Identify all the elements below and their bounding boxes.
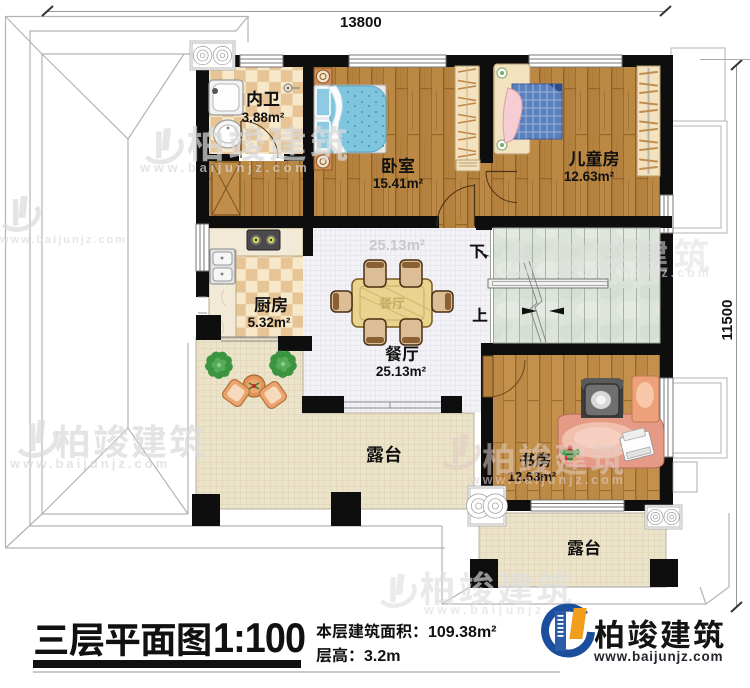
- svg-text:www.baijunjz.com: www.baijunjz.com: [555, 266, 712, 280]
- svg-text:13800: 13800: [340, 14, 382, 31]
- svg-text:www.baijunjz.com: www.baijunjz.com: [139, 160, 310, 175]
- svg-text:12.63m²: 12.63m²: [564, 169, 615, 184]
- svg-text:109.38m²: 109.38m²: [428, 624, 497, 641]
- svg-text:25.13m²: 25.13m²: [369, 237, 425, 254]
- svg-text:www.baijunjz.com: www.baijunjz.com: [0, 234, 127, 246]
- svg-text:11500: 11500: [719, 300, 736, 341]
- svg-text:www.baijunjz.com: www.baijunjz.com: [469, 473, 626, 487]
- svg-text:3.88m²: 3.88m²: [242, 110, 285, 125]
- svg-text:5.32m²: 5.32m²: [248, 315, 291, 330]
- svg-text:1:100: 1:100: [213, 615, 305, 661]
- svg-text:15.41m²: 15.41m²: [373, 176, 424, 191]
- svg-text:www.baijunjz.com: www.baijunjz.com: [9, 456, 170, 471]
- svg-text:3.2m: 3.2m: [364, 648, 400, 665]
- svg-text:25.13m²: 25.13m²: [376, 364, 427, 379]
- svg-text:www.baijunjz.com: www.baijunjz.com: [593, 649, 723, 664]
